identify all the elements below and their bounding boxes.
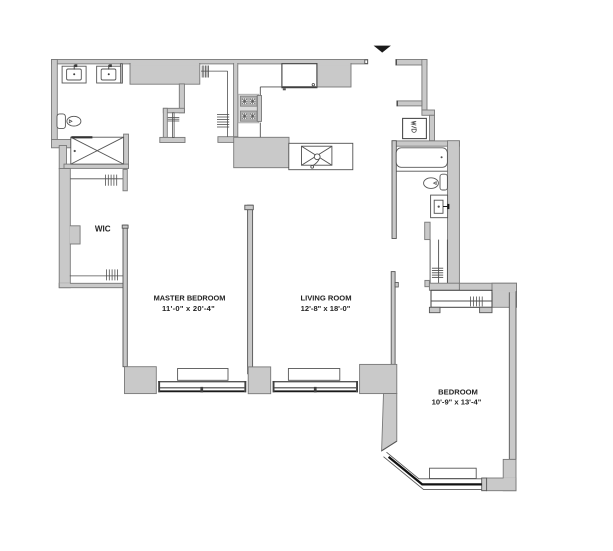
svg-text:BEDROOM: BEDROOM [438,387,478,396]
svg-text:10'-9" x 13'-4": 10'-9" x 13'-4" [432,398,482,407]
svg-text:LIVING ROOM: LIVING ROOM [300,294,351,303]
svg-text:WIC: WIC [95,225,111,234]
svg-text:12'-8" x 18'-0": 12'-8" x 18'-0" [301,304,351,313]
svg-text:MASTER BEDROOM: MASTER BEDROOM [154,294,226,303]
svg-text:11'-0" x 20'-4": 11'-0" x 20'-4" [162,304,215,313]
